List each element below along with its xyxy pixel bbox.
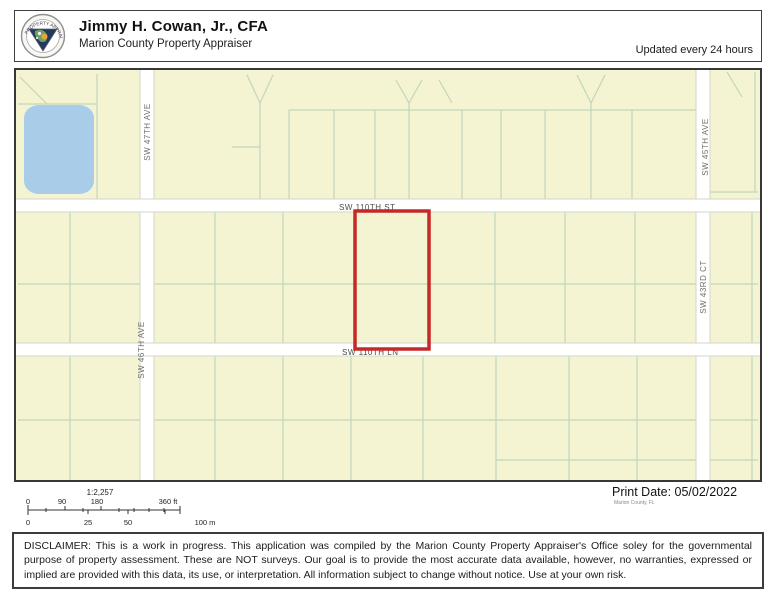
scale-bar-graphic: 1:2,257 0 90 180 360 ft [14,484,274,530]
header: PROPERTY APPRAISER Jimmy H. Cowan, Jr., … [14,10,762,62]
street-label-sw-43rd-ct: SW 43RD CT [699,260,708,313]
scale-m-25: 25 [84,518,92,527]
page-subtitle: Marion County Property Appraiser [79,38,268,50]
county-seal-icon: PROPERTY APPRAISER [20,13,66,59]
property-appraiser-map-page: PROPERTY APPRAISER Jimmy H. Cowan, Jr., … [0,0,776,600]
print-source: Marion County, FL [612,500,762,506]
scale-ruler [28,505,180,515]
county-seal-logo: PROPERTY APPRAISER [20,13,66,59]
scale-ft-90: 90 [58,497,66,506]
scale-m-0: 0 [26,518,30,527]
disclaimer-box: DISCLAIMER: This is a work in progress. … [12,532,764,589]
map-background [16,70,760,480]
page-title: Jimmy H. Cowan, Jr., CFA [79,18,268,35]
parcel-map-canvas: SW 47TH AVE SW 46TH AVE SW 45TH AVE SW 4… [16,70,760,480]
scale-m-50: 50 [124,518,132,527]
scale-ratio: 1:2,257 [87,488,114,497]
print-date: Print Date: 05/02/2022 [612,485,762,499]
street-label-sw-46th-ave: SW 46TH AVE [137,321,146,378]
scale-ft-0: 0 [26,497,30,506]
parcel-map: SW 47TH AVE SW 46TH AVE SW 45TH AVE SW 4… [14,68,762,482]
street-label-sw-47th-ave: SW 47TH AVE [143,103,152,160]
updated-notice: Updated every 24 hours [636,44,753,56]
print-info: Print Date: 05/02/2022 Marion County, FL [612,485,762,506]
scale-m-100: 100 m [195,518,216,527]
map-scale-bar: 1:2,257 0 90 180 360 ft [14,484,274,530]
disclaimer-text: DISCLAIMER: This is a work in progress. … [24,539,752,582]
pond-water-feature [24,105,94,194]
scale-ft-360: 360 ft [159,497,179,506]
scale-ft-180: 180 [91,497,104,506]
street-label-sw-45th-ave: SW 45TH AVE [701,118,710,175]
